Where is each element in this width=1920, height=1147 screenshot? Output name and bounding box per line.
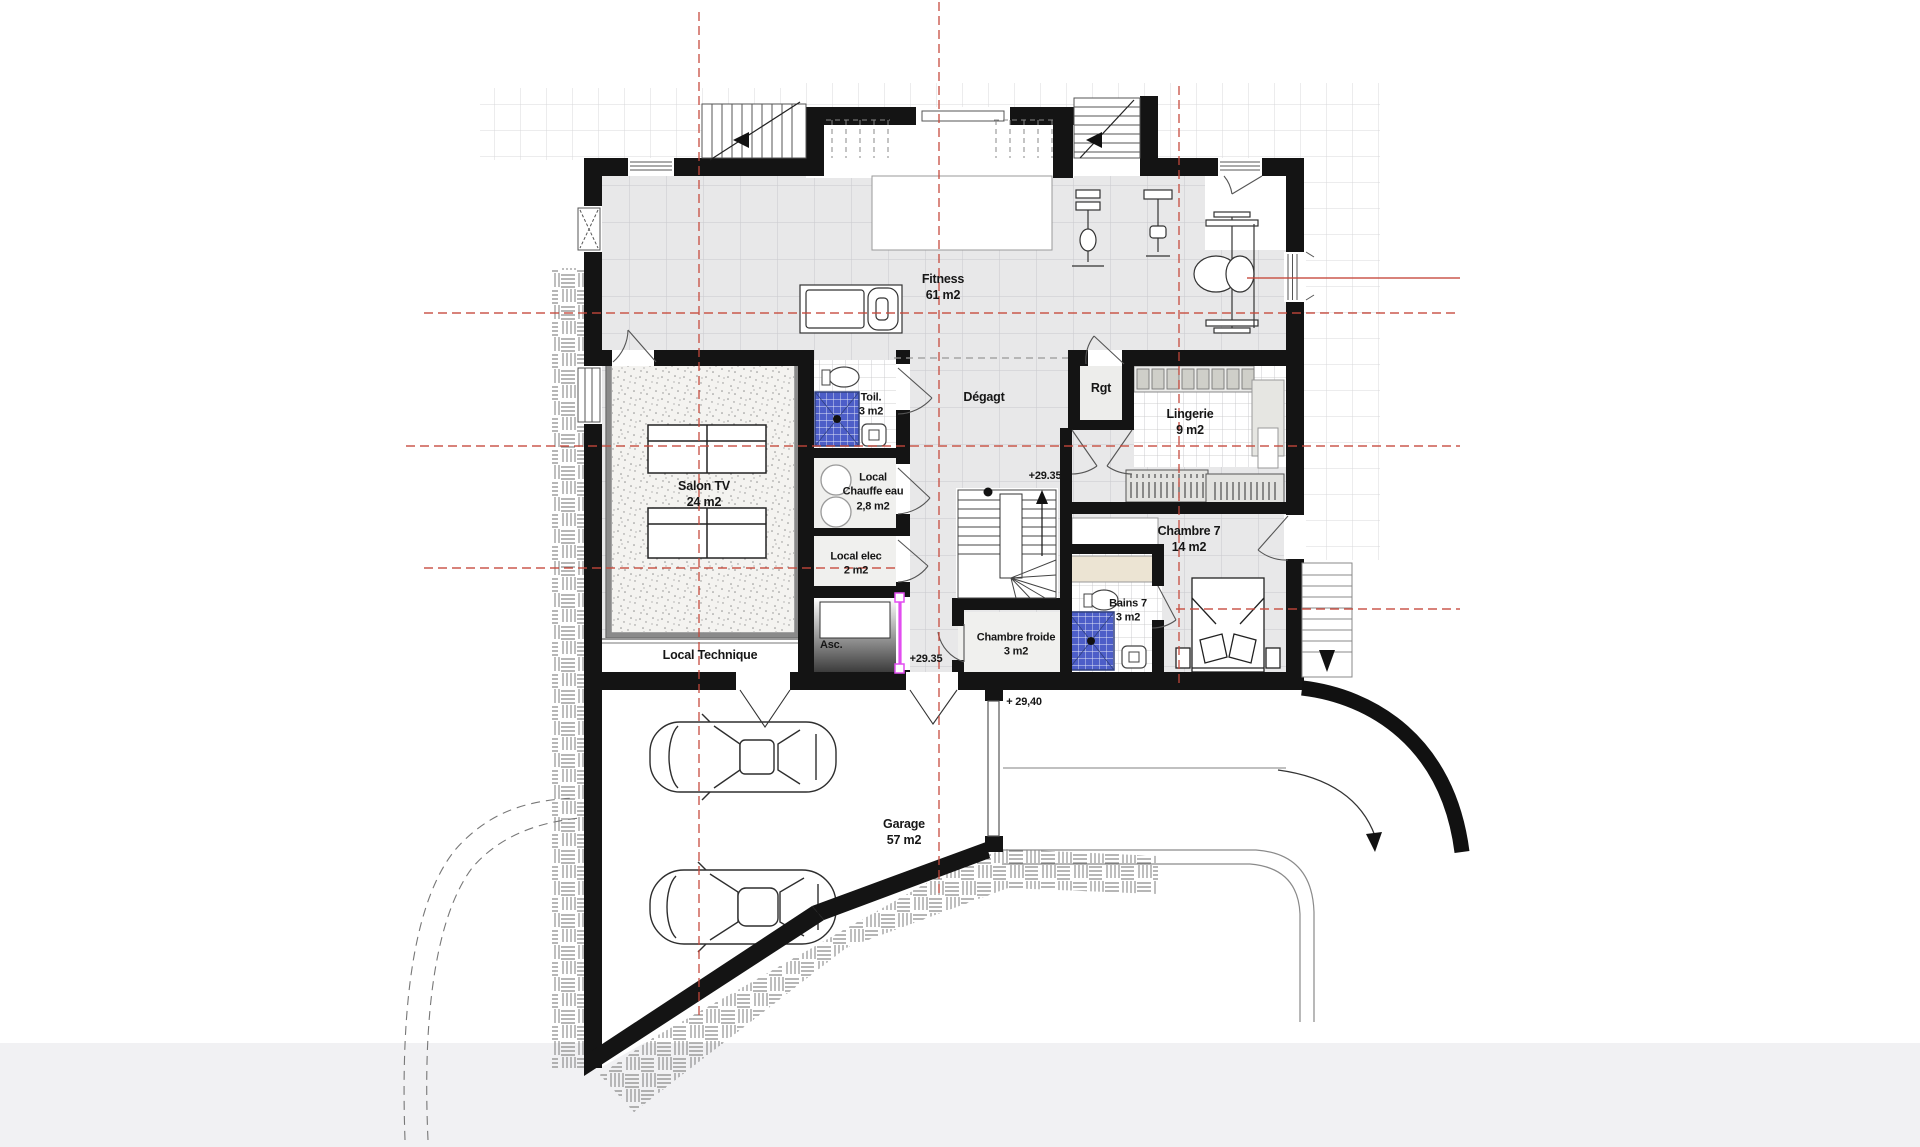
bottom-band bbox=[0, 1043, 1920, 1147]
floor-plan-drawing bbox=[0, 0, 1920, 1147]
toilet-bowl bbox=[829, 367, 859, 387]
driveway-arrow-icon bbox=[1366, 832, 1382, 852]
bains-counter bbox=[1068, 556, 1156, 582]
bed bbox=[1176, 578, 1280, 672]
local-elec-floor bbox=[814, 536, 896, 586]
sofa bbox=[648, 508, 766, 558]
car bbox=[650, 862, 836, 952]
north-east-stairs bbox=[1074, 98, 1140, 158]
driveway-arrow-curve bbox=[1278, 770, 1375, 836]
entry-void bbox=[872, 176, 1052, 250]
driveway-curb-lines bbox=[1002, 768, 1314, 1022]
salon-tv-carpet bbox=[612, 366, 794, 632]
exterior-steps-right bbox=[1302, 563, 1352, 677]
garage-door bbox=[988, 701, 999, 836]
water-heater bbox=[821, 465, 851, 495]
toilet-tank bbox=[822, 370, 830, 385]
treadmill bbox=[800, 285, 902, 333]
elevator-cab bbox=[820, 602, 890, 638]
chambre-froide-floor bbox=[958, 612, 1060, 672]
entry-stairs bbox=[702, 102, 806, 160]
toilet-bowl bbox=[1090, 590, 1118, 610]
sofa bbox=[648, 425, 766, 473]
car bbox=[650, 714, 836, 800]
terrace-side-strip bbox=[1304, 158, 1380, 560]
site-walls bbox=[1278, 688, 1462, 852]
water-heater bbox=[821, 497, 851, 527]
rangement-floor bbox=[1080, 366, 1122, 420]
level-dot-marker bbox=[984, 488, 993, 497]
floor-plan-page: Fitness 61 m2 Toil. 3 m2 Dégagt Rgt Ling… bbox=[0, 0, 1920, 1147]
wardrobe bbox=[1126, 470, 1284, 504]
curved-driveway-wall bbox=[1302, 688, 1462, 852]
